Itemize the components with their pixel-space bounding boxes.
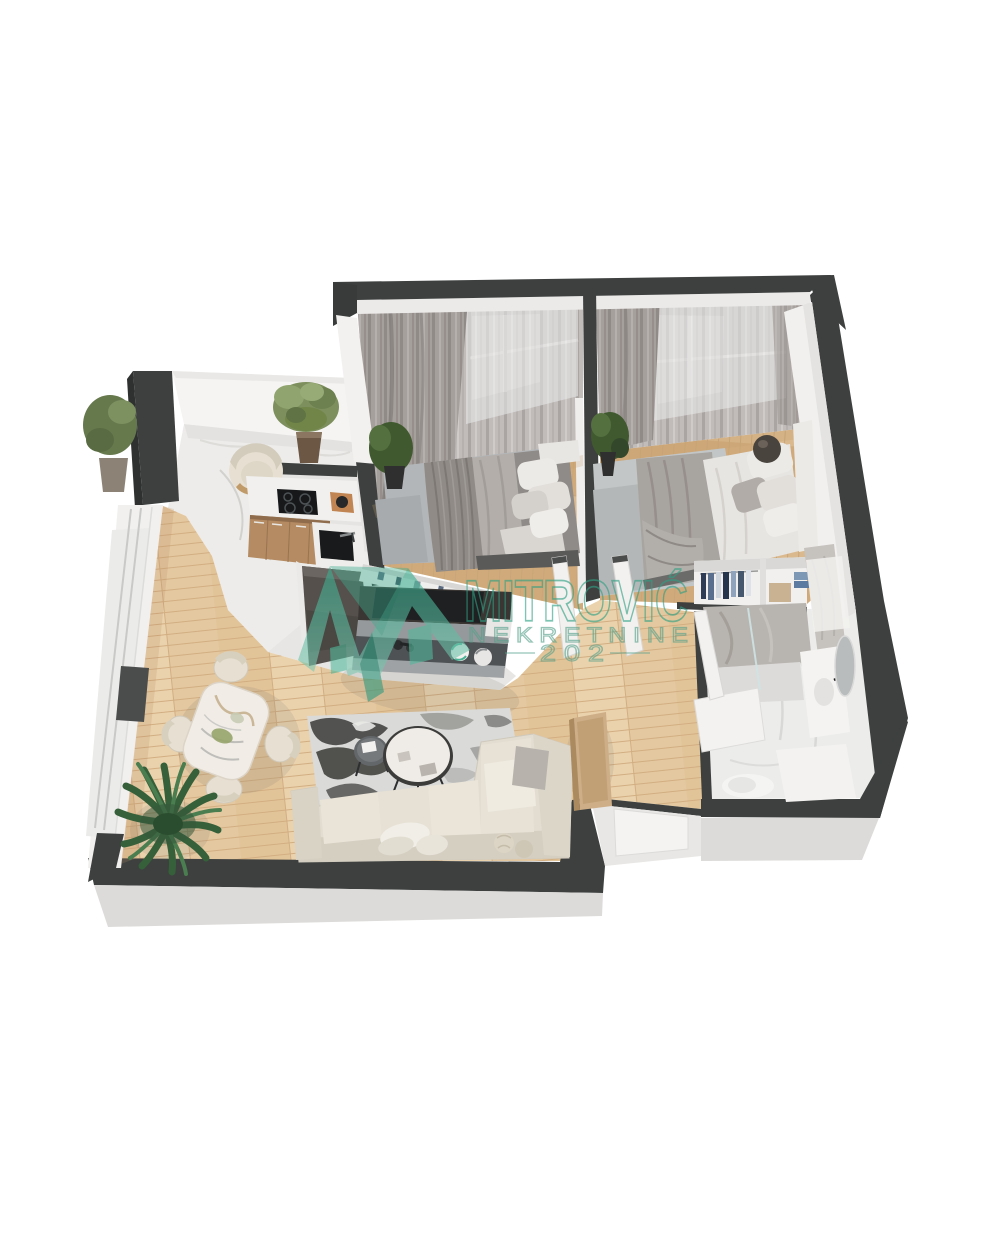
svg-text:2 0 2: 2 0 2 bbox=[540, 640, 604, 666]
